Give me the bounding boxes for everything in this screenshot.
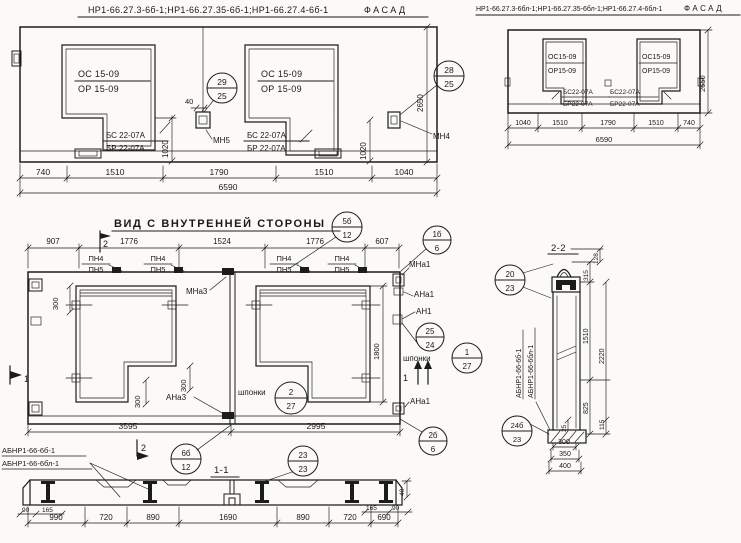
joint-plate-bottom [222,412,234,419]
callout-6: 6 [431,445,436,454]
callout-27: 27 [287,402,296,411]
leader-line [402,323,418,344]
dim-1040: 1040 [395,167,414,177]
section-2-2: 2-2 20 23 25 128 315 1510 825 2220 115 2… [495,243,610,474]
label-ana3: АНа3 [166,393,187,402]
dim-6590: 6590 [596,135,613,144]
section1-arrow-left [10,371,22,379]
joint-plate-top [222,268,234,275]
dim-1510: 1510 [315,167,334,177]
dim-690: 690 [377,513,391,522]
facade-right-title: НР1-66.27.3-6бл-1;НР1-66.27.35-6бл-1;НР1… [476,5,662,13]
i-beams [41,481,393,503]
dim-607: 607 [375,237,389,246]
dim-990: 990 [49,513,63,522]
window1-mark-bottom: ОР15-09 [548,68,576,75]
dim-2650: 2650 [416,94,425,112]
panel-mark-1: АБНР1-66-6б-1 [2,446,55,455]
window-frame-1 [80,290,172,398]
dim-1524: 1524 [213,237,231,246]
dim-1040: 1040 [515,120,531,127]
dim-6590: 6590 [219,182,238,192]
dim-720: 720 [99,513,113,522]
anchor-mn4 [388,112,400,128]
leader-line [400,419,422,432]
leader-line [194,397,224,414]
label-pn4: ПН4 [89,254,104,263]
dim-890: 890 [146,513,160,522]
section-body-inner [557,296,576,428]
callout-23: 23 [299,451,308,460]
dim-40-line [191,105,207,111]
anchor-mn4-inner [391,116,397,124]
dim-907: 907 [46,237,60,246]
window1-mark-bottom: ОР 15-09 [78,84,119,94]
facade-left-title: НР1-66.27.3-6б-1;НР1-66.27.35-6б-1;НР1-6… [88,5,328,15]
window2-mark-top: ОС 15-09 [261,69,302,79]
dim-row-line [17,164,440,182]
dim-300: 300 [558,439,570,446]
panel-mark-2: АБНР1-66-6бл-1 [527,345,535,398]
sill2-mark-bottom: БР22-07А [610,101,640,108]
dim-350: 350 [559,451,571,458]
callout-24b: 24б [511,421,524,430]
callout-2: 2 [289,388,294,397]
leader-line [405,402,409,407]
callout-23: 23 [299,465,308,474]
label-mn4: МН4 [433,132,450,141]
leader-line [160,122,170,133]
dim-115: 115 [599,419,606,430]
section-1-1: 1-1 23 23 90 165 165 90 40 990 720 890 1… [17,446,412,527]
label-pn4: ПН4 [151,254,166,263]
leader-line [300,130,312,142]
center-anchor [605,80,611,86]
window-frame-2 [260,290,366,398]
dim-1510: 1510 [583,328,590,344]
leader-line [523,264,553,298]
callout-12: 12 [182,463,191,472]
dim-2995: 2995 [307,421,326,431]
leader-line [401,121,432,134]
callout-27: 27 [463,362,472,371]
dim-1800: 1800 [372,343,381,360]
section1-cut-line-right [418,368,428,384]
dim-1020-right: 1020 [359,142,368,160]
label-pn4: ПН4 [277,254,292,263]
section1-mark: 1 [403,373,408,383]
dim-2650-line [424,24,437,165]
callout-23: 23 [506,284,515,293]
dim-40: 40 [399,488,406,496]
label-mna3: МНа3 [186,287,208,296]
label-an1: АН1 [416,307,432,316]
panel-joint [230,272,235,424]
anchor-mn5 [196,112,210,128]
facade-right: НР1-66.27.3-6бл-1;НР1-66.27.35-6бл-1;НР1… [476,4,740,149]
callout-6b: 6б [181,449,190,458]
sill1-mark-bottom: БР 22-07А [106,144,145,153]
window-opening-1 [76,286,176,402]
dim-1510: 1510 [106,167,125,177]
panel-mark-1: АБНР1-66-6б-1 [515,348,523,398]
panel-outline [28,272,400,424]
dim-40: 40 [185,97,193,106]
callout-25: 25 [426,327,435,336]
label-ana1b: АНа1 [410,397,431,406]
label-pn4: ПН4 [335,254,350,263]
dim-300-line [143,377,149,407]
window1-mark-top: ОС15-09 [548,54,577,61]
facade-right-title-fasad: ФАСАД [684,4,724,13]
label-shponki: шпонки [403,354,431,363]
dim-740: 740 [683,120,695,127]
dim-90: 90 [392,505,400,512]
window2-mark-bottom: ОР15-09 [642,68,670,75]
facade-left-title-fasad: ФАСАД [364,5,408,15]
edge-anchor-inner [14,54,19,63]
dim-300: 300 [133,395,142,408]
leader-line [206,130,212,139]
lifting-loop-inner [560,273,568,278]
dim-1510: 1510 [552,120,568,127]
facade-left: НР1-66.27.3-6б-1;НР1-66.27.35-6б-1;НР1-6… [12,5,464,197]
callout-5b: 5б [342,217,351,226]
dim-90: 90 [22,507,30,514]
dim-300: 300 [51,297,60,310]
dim-165: 165 [366,505,377,512]
callout-2b: 2б [428,431,437,440]
dim-740: 740 [36,167,50,177]
callout-24: 24 [426,341,435,350]
anchor-mn5-inner [199,116,207,124]
panel-outline [508,30,700,113]
joint-recesses [96,480,318,487]
dim-1510: 1510 [648,120,664,127]
dim-1790: 1790 [210,167,229,177]
dim-300: 300 [179,379,188,392]
window-opening-2 [256,286,370,402]
callout-1: 1 [465,348,470,357]
callout-29: 29 [217,77,227,87]
dim-1776: 1776 [306,237,324,246]
section2-mark: 2 [103,239,108,249]
sill1-mark-top: БС22-07А [563,89,594,96]
callout-23: 23 [513,435,521,444]
panel-marks: АБНР1-66-6б-1 АБНР1-66-6бл-1 [2,446,148,497]
leader-line [210,277,226,290]
embed-plate-inner [79,151,97,156]
sill1-mark-bottom: БР22-07А [563,101,593,108]
dim-720: 720 [343,513,357,522]
section2-mark: 2 [141,443,146,453]
label-mn5: МН5 [213,136,230,145]
leader-line [530,424,549,434]
callout-1b: 1б [432,230,441,239]
sill2-mark-top: БС 22-07А [247,131,287,140]
dim-3595: 3595 [119,421,138,431]
drawing-canvas: НР1-66.27.3-6б-1;НР1-66.27.35-6б-1;НР1-6… [0,0,741,543]
dim-2650-line [700,27,712,116]
window1-mark-top: ОС 15-09 [78,69,119,79]
jamb-anchors [66,301,380,382]
callout-6: 6 [435,244,440,253]
leader-line [404,292,413,296]
section-2-2-title: 2-2 [551,243,566,254]
dim-2220: 2220 [599,348,606,364]
leader-line [535,328,550,430]
leader-line [197,425,231,450]
right-edge-anchors [393,274,404,414]
leader-line [402,312,415,319]
left-edge-anchors [29,279,42,415]
sill1-mark-top: БС 22-07А [106,131,146,140]
dim-1690: 1690 [219,513,237,522]
section1-mark: 1 [24,374,29,384]
callout-20: 20 [506,270,515,279]
callout-12: 12 [343,231,352,240]
inner-view: ВИД С ВНУТРЕННЕЙ СТОРОНЫ 907 1776 1524 1… [10,212,482,474]
joint-channel [224,480,240,504]
dim-2650: 2650 [698,75,707,92]
callout-25: 25 [444,79,454,89]
blueprint-sheet: НР1-66.27.3-6б-1;НР1-66.27.35-6б-1;НР1-6… [0,0,741,543]
window2-mark-top: ОС15-09 [642,54,671,61]
callout-25: 25 [217,91,227,101]
label-shponki: шпонки [238,388,266,397]
dim-1790: 1790 [600,120,616,127]
dim-25: 25 [561,424,568,432]
inner-view-title: ВИД С ВНУТРЕННЕЙ СТОРОНЫ [114,217,326,230]
sill2-mark-top: БС22-07А [610,89,641,96]
dim-1776: 1776 [120,237,138,246]
lifting-loop [557,270,571,278]
dim-315: 315 [583,270,590,281]
section2-arrow-bottom [137,452,149,460]
channel-profile [556,280,576,290]
section-1-1-title: 1-1 [214,465,229,476]
dim-1020-left: 1020 [161,140,170,158]
window2-mark-bottom: ОР 15-09 [261,84,302,94]
dim-890: 890 [296,513,310,522]
dim-row-bottom [25,424,403,436]
dim-300-line [67,283,73,315]
dim-line-a [572,259,610,437]
panel-mark-2: АБНР1-66-6бл-1 [2,459,59,468]
dim-400: 400 [559,463,571,470]
dim-825: 825 [583,402,590,414]
label-ana1: АНа1 [414,290,435,299]
sill2-mark-bottom: БР 22-07А [247,144,286,153]
callout-28: 28 [444,65,454,75]
